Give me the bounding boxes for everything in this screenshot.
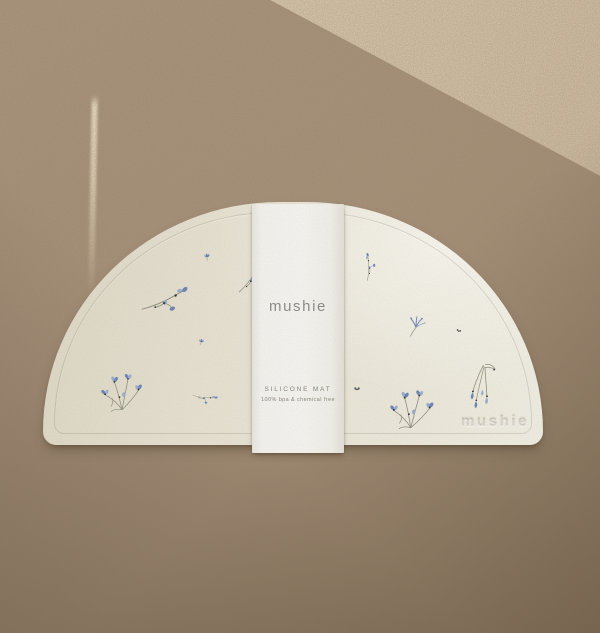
flower-bud: [195, 336, 207, 348]
flower-bud: [201, 251, 213, 263]
flower-bells: [461, 360, 500, 416]
flower-moth: [455, 326, 464, 334]
sleeve-brand-logo: mushie: [252, 298, 344, 315]
flower-sprig: [190, 381, 220, 411]
sleeve-label-title: SILICONE MAT: [252, 386, 344, 394]
flower-sprig: [138, 274, 190, 321]
flower-sprig: [351, 250, 384, 283]
flower-moth: [353, 384, 361, 391]
sleeve-label-subtitle: 100% bpa & chemical free: [252, 396, 344, 404]
flower-cluster: [97, 369, 146, 415]
flower-fan: [406, 313, 427, 338]
flower-cluster: [384, 383, 439, 435]
packaging-sleeve: mushie SILICONE MAT 100% bpa & chemical …: [252, 204, 344, 453]
product-photo-scene: mushie mushie SILICONE MAT 100% bpa & ch…: [0, 0, 600, 633]
sleeve-label: SILICONE MAT 100% bpa & chemical free: [252, 386, 344, 404]
embossed-brand-logo: mushie: [461, 413, 529, 430]
